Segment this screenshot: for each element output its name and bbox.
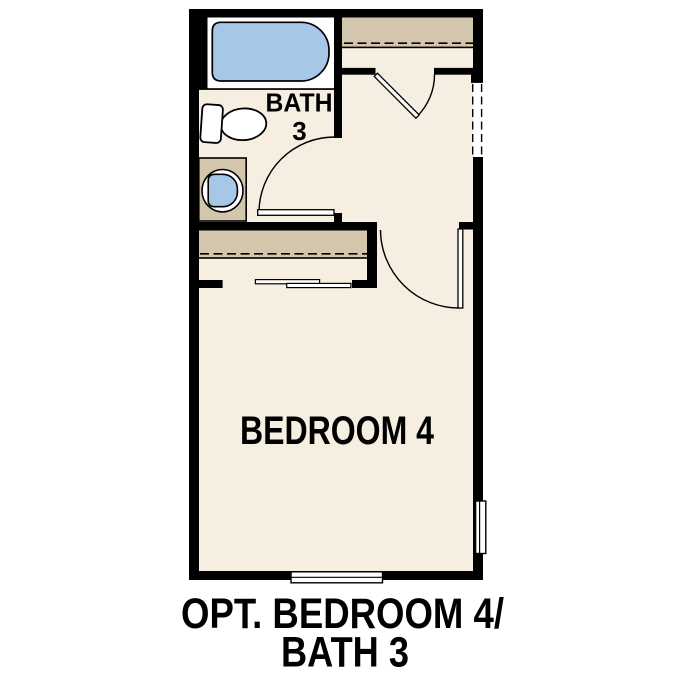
svg-text:BEDROOM 4: BEDROOM 4	[240, 409, 435, 453]
svg-text:BATH: BATH	[266, 87, 333, 117]
svg-text:3: 3	[292, 116, 306, 146]
svg-text:BATH 3: BATH 3	[281, 629, 409, 677]
